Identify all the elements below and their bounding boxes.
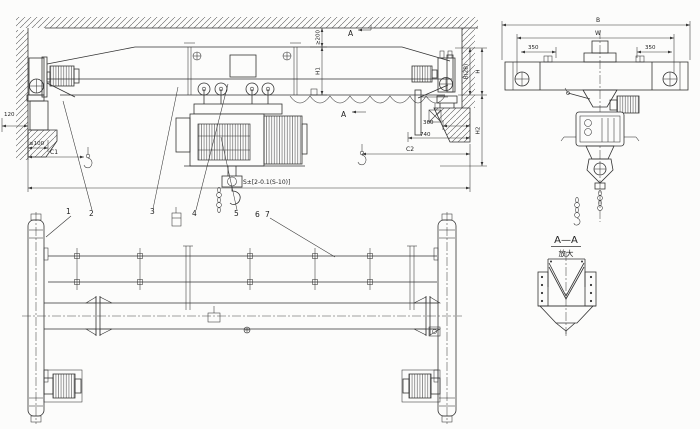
ceiling-hatch bbox=[16, 17, 478, 28]
end-view-dimensions: B W 350 350 bbox=[502, 17, 690, 76]
dim-120: 120 bbox=[4, 112, 15, 118]
handrail-post bbox=[75, 248, 80, 290]
section-mark-top-label: A bbox=[348, 29, 354, 38]
end-view: B W 350 350 bbox=[502, 17, 690, 225]
control-box bbox=[230, 55, 256, 77]
plan-girder bbox=[22, 296, 462, 336]
dim-h: H bbox=[476, 69, 482, 73]
handrail-post bbox=[248, 248, 253, 290]
elevation-view: A A 120 ≥100 C1 bbox=[2, 17, 487, 257]
end-view-chain bbox=[574, 190, 602, 225]
callout-5: 5 bbox=[234, 209, 239, 218]
hook-position-marker-right bbox=[358, 144, 366, 165]
dim-c2: C2 bbox=[406, 146, 414, 153]
callout-2: 2 bbox=[89, 209, 94, 218]
dim-b: B bbox=[596, 17, 600, 24]
end-view-motor bbox=[617, 96, 639, 113]
dim-740: 740 bbox=[420, 132, 431, 138]
crane-technical-drawing: A A 120 ≥100 C1 bbox=[0, 0, 700, 429]
section-mark-bottom-label: A bbox=[341, 110, 347, 119]
plan-right-carriage bbox=[434, 212, 456, 424]
dim-350-right: 350 bbox=[645, 45, 656, 51]
hoist-trolley bbox=[176, 83, 307, 166]
elevation-dimensions: 120 ≥100 C1 ≥200 H1 B(2B bbox=[2, 28, 487, 192]
callout-3: 3 bbox=[150, 207, 155, 216]
detail-view-aa: A—A 放大 bbox=[538, 235, 596, 336]
left-support-bracket bbox=[27, 95, 57, 157]
left-wall bbox=[16, 28, 28, 160]
handrail-post bbox=[313, 248, 318, 290]
part-callouts: 1 2 3 4 5 6 7 bbox=[46, 84, 335, 257]
dim-span: S±[2-0.1(S-10)] bbox=[243, 179, 290, 186]
hoist-motor bbox=[264, 116, 302, 164]
drawing-page: A A 120 ≥100 C1 bbox=[0, 0, 700, 429]
dim-h1: H1 bbox=[316, 67, 322, 75]
dim-360: 360 bbox=[423, 120, 434, 126]
hook-block bbox=[222, 166, 242, 204]
small-hook-icon bbox=[574, 218, 580, 225]
detail-geometry bbox=[538, 259, 596, 334]
dim-c1: C1 bbox=[50, 149, 58, 156]
right-end-truck bbox=[412, 51, 455, 98]
pendant-station bbox=[172, 213, 181, 226]
dim-w: W bbox=[595, 30, 601, 37]
hook-position-marker-left bbox=[84, 147, 92, 168]
callout-6: 6 bbox=[255, 210, 260, 219]
plan-left-drive-motor bbox=[44, 370, 82, 402]
dim-b2b: B(2B) bbox=[464, 64, 470, 79]
detail-title: A—A bbox=[554, 235, 578, 246]
plan-right-drive-motor bbox=[402, 370, 440, 402]
handrail-post bbox=[138, 248, 143, 290]
plan-view bbox=[22, 212, 462, 424]
callout-1: 1 bbox=[66, 207, 71, 216]
handrail-post bbox=[368, 248, 373, 290]
dim-ge100: ≥100 bbox=[29, 141, 45, 147]
callout-4: 4 bbox=[192, 209, 197, 218]
dim-h2: H2 bbox=[476, 127, 482, 135]
girder-center-stop bbox=[208, 313, 220, 322]
section-marks: A A bbox=[341, 25, 371, 119]
callout-7: 7 bbox=[265, 210, 270, 219]
dim-350-left: 350 bbox=[528, 45, 539, 51]
plan-left-carriage bbox=[28, 212, 48, 424]
dim-ge200: ≥200 bbox=[316, 29, 322, 45]
